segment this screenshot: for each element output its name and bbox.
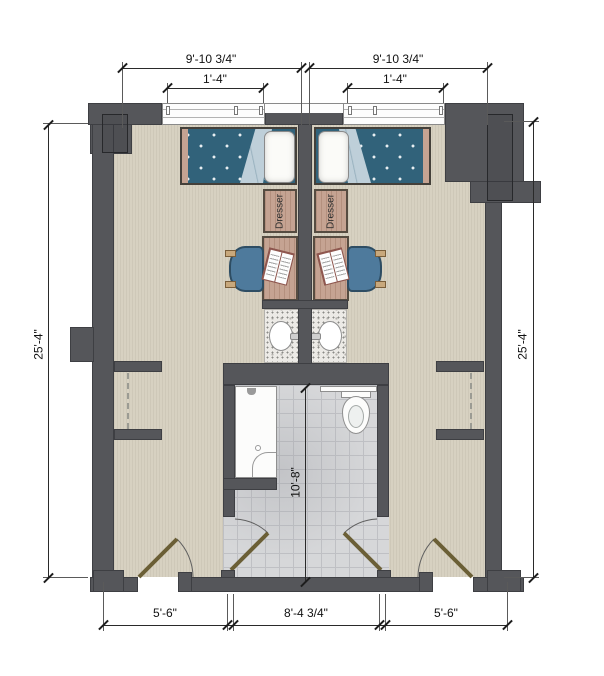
dimension-line-bath — [305, 388, 306, 582]
door-leaf-entry-right — [434, 539, 472, 577]
extension-line — [301, 62, 302, 125]
dim-top-left-text: 9'-10 3/4" — [166, 52, 256, 66]
door-leaf-bath-left — [231, 533, 268, 570]
door-leaf-bath-right — [344, 533, 381, 570]
closet-stub-left-lower — [114, 429, 162, 440]
dim-top-right-text: 9'-10 3/4" — [353, 52, 443, 66]
dimension-line-right — [533, 122, 534, 578]
door-arc-bath-right — [344, 519, 377, 533]
dim-window-right-text: 1'-4" — [360, 72, 430, 86]
wall-desk-back — [262, 300, 348, 309]
wall-bath-left — [223, 385, 235, 517]
window-right-glass-line — [344, 117, 444, 118]
door-cap-left — [178, 572, 192, 592]
column-outline-top-left — [102, 114, 128, 153]
window-center-strip — [265, 103, 343, 113]
window-left-mullion — [166, 106, 170, 115]
column-outline-top-right — [487, 114, 513, 201]
window-right-mullion — [439, 106, 443, 115]
dim-right-text: 25'-4" — [516, 321, 529, 369]
window-left-glass-line — [163, 117, 264, 118]
dimension-line-left — [48, 125, 49, 578]
dim-bottom-center-text: 8'-4 3/4" — [261, 606, 351, 620]
window-right-mullion — [348, 106, 352, 115]
extension-line — [122, 62, 123, 128]
wall-left-bump — [70, 327, 94, 362]
dimension-line-window-right — [347, 88, 443, 89]
window-right-mullion — [373, 106, 377, 115]
window-left-glass-line — [163, 109, 264, 110]
dim-left-text: 25'-4" — [32, 321, 45, 369]
jamb-bath-right — [377, 570, 391, 578]
corner-cap-bottom-right — [487, 570, 521, 592]
dimension-line-window-left — [167, 88, 263, 89]
extension-line — [487, 62, 488, 125]
dimension-line-top-left — [122, 68, 301, 69]
closet-stub-right-lower — [436, 429, 484, 440]
closet-stub-right-upper — [436, 361, 484, 372]
window-left-mullion — [259, 106, 263, 115]
window-right — [343, 103, 445, 125]
wall-left — [92, 124, 114, 578]
floor-plan-canvas: Dresser Dresser — [0, 0, 604, 676]
jamb-bath-left — [221, 570, 235, 578]
window-right-glass-line — [344, 109, 444, 110]
corner-cap-bottom-left — [93, 570, 124, 592]
dim-bath-text: 10'-8" — [289, 459, 302, 507]
door-leaf-entry-left — [139, 539, 177, 577]
door-arc-bath-left — [235, 519, 268, 533]
dimension-line-bottom — [103, 625, 507, 626]
wall-bath-right — [377, 385, 389, 517]
dimension-line-top-right — [309, 68, 487, 69]
wall-bath-top — [223, 363, 389, 385]
door-cap-right — [419, 572, 433, 592]
closet-stub-left-upper — [114, 361, 162, 372]
dim-window-left-text: 1'-4" — [180, 72, 250, 86]
dim-bottom-left-text: 5'-6" — [125, 606, 205, 620]
dim-bottom-right-text: 5'-6" — [406, 606, 486, 620]
window-left — [162, 103, 265, 125]
wall-right — [485, 202, 502, 578]
extension-line — [309, 62, 310, 125]
wall-center-divider — [298, 124, 312, 364]
window-left-mullion — [234, 106, 238, 115]
wall-shower-bottom — [223, 478, 277, 490]
